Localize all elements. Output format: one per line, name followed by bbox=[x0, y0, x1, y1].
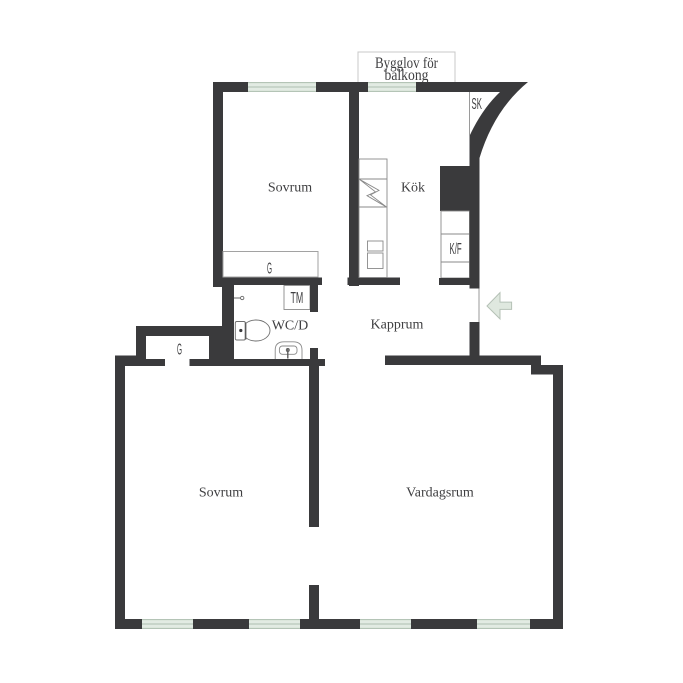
svg-text:Kapprum: Kapprum bbox=[371, 318, 424, 333]
svg-text:G: G bbox=[267, 261, 272, 278]
svg-text:Sovrum: Sovrum bbox=[199, 486, 243, 501]
svg-text:K/F: K/F bbox=[450, 241, 462, 258]
svg-text:TM: TM bbox=[291, 290, 304, 307]
svg-text:balkong: balkong bbox=[385, 67, 429, 84]
svg-text:SK: SK bbox=[472, 96, 483, 113]
svg-text:G: G bbox=[177, 342, 182, 359]
svg-text:Vardagsrum: Vardagsrum bbox=[406, 486, 474, 501]
svg-text:Sovrum: Sovrum bbox=[268, 181, 312, 196]
svg-text:WC/D: WC/D bbox=[272, 319, 309, 334]
svg-text:Kök: Kök bbox=[401, 181, 425, 196]
